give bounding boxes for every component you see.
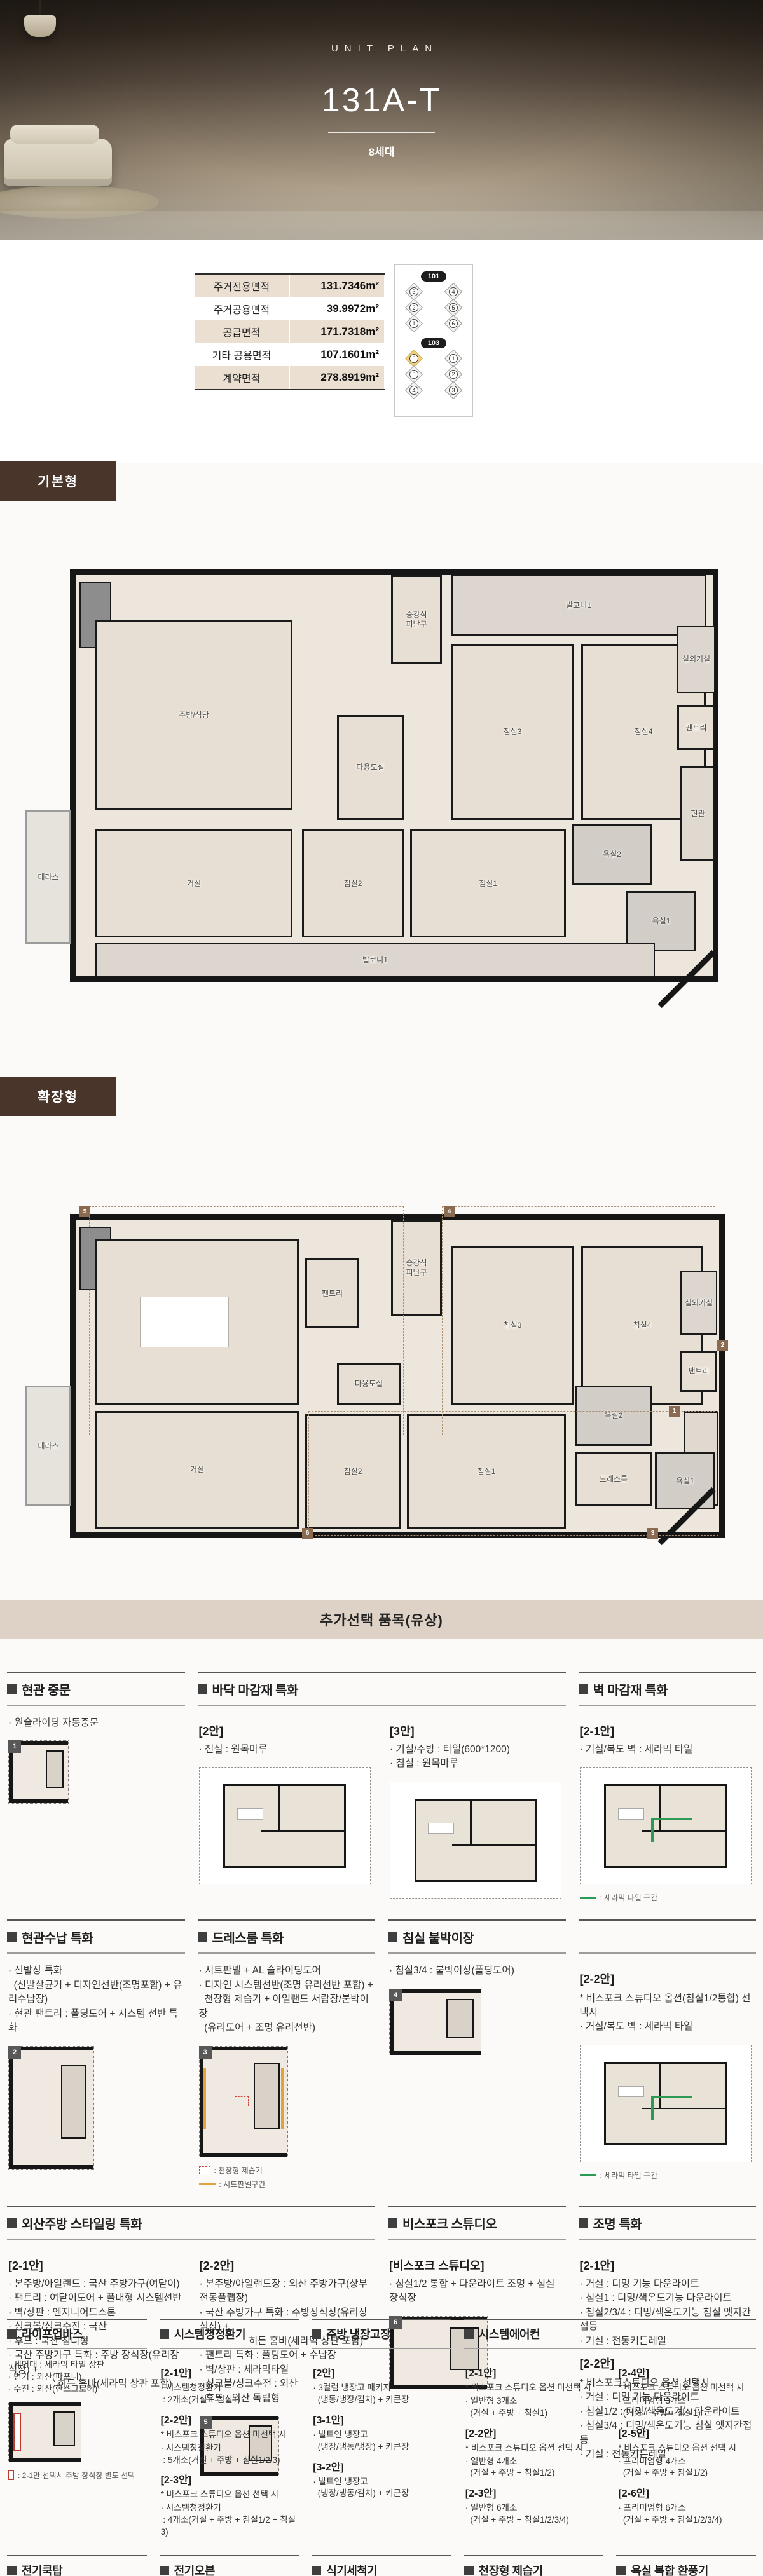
option-header [579, 1919, 757, 1954]
option-bullet: : 2개소(거실 + 침실1) [161, 2394, 298, 2406]
legend-row: : 세라믹 타일 구간 [580, 2170, 755, 2181]
option-variant-tag: [2-1안] [580, 1722, 755, 1739]
unit-position: 4 [404, 383, 423, 397]
option-header-label: 전기오븐 [174, 2562, 215, 2576]
option-cell: 바닥 마감재 특화[2안]· 전실 : 원목마루[3안]· 거실/주방 : 타일… [198, 1672, 566, 1899]
option-bullet: : 4개소(거실 + 주방 + 침실1/2 + 침실3) [161, 2514, 298, 2539]
unit-position: 3 [444, 383, 463, 397]
option-note: * 비스포크 스튜디오 옵션 선택 시 [465, 2443, 602, 2455]
area-table-row: 기타 공용면적107.1601m² [195, 343, 385, 366]
option-header-label: 벽 마감재 특화 [593, 1680, 668, 1698]
section-bullet-icon [7, 1684, 17, 1694]
option-cell: 전기오븐[2-1안]· 엘지전자/MZ941CLCAT[2-2안]· 밀레/H7… [160, 2555, 299, 2576]
room-label: 현관 [691, 809, 705, 819]
section-bullet-icon [464, 2566, 474, 2575]
unit-position: 2 [444, 367, 463, 381]
option-bullet: · 침실1 : 디밍/색온도기능 다운라이트 [580, 2291, 755, 2305]
option-marker: 6 [302, 1528, 313, 1539]
unit-position-grid: 342516 [399, 285, 469, 331]
option-bullet: · 팬트리 : 여닫이도어 + 폴대형 시스템선반 [8, 2291, 183, 2305]
area-value: 171.7318m² [290, 320, 384, 343]
thumbnail-marker: 5 [200, 2416, 212, 2429]
unit-number: 5 [449, 303, 458, 312]
option-note: * 비스포크 스튜디오 옵션 미선택 시 [465, 2382, 602, 2394]
dehumidifier-zone [235, 2096, 249, 2106]
thumbnail-legends: : 세라믹 타일 구간 [580, 2170, 755, 2181]
option-header: 전기오븐 [160, 2555, 299, 2576]
room-욕실2: 욕실2 [572, 824, 652, 885]
mini-floor-plan [223, 1784, 346, 1868]
room-거실: 거실 [95, 829, 292, 937]
option-bullet: (신발살균기 + 디자인선반(조명포함) + 유리수납장) [8, 1979, 184, 2007]
option-bullet: · 시스템청정환기 [161, 2382, 298, 2394]
hero-banner: UNIT PLAN 131A-T 8세대 [0, 0, 763, 240]
option-bullet: · 빌트인 냉장고 [313, 2429, 450, 2441]
option-bullet: · 3컬럼 냉장고 패키지 [313, 2382, 450, 2394]
room-label: 발코니1 [566, 601, 591, 610]
expansion-dashed-outline [89, 1206, 404, 1435]
thumbnail-marker: 4 [389, 1989, 402, 2001]
options-section-title: 추가선택 품목(유상) [0, 1600, 763, 1639]
option-thumbnail: 1 [8, 1740, 69, 1804]
section-bullet-icon [7, 2566, 17, 2575]
option-body: [2안]· 3컬럼 냉장고 패키지 (냉동/냉장/김치) + 키큰장[3-1안]… [312, 2349, 451, 2500]
option-variant-tag: [2-3안] [161, 2471, 298, 2486]
legend-text: : 세라믹 타일 구간 [600, 2170, 658, 2181]
room-label: 테라스 [38, 873, 58, 882]
orange-legend-icon [199, 2183, 216, 2185]
option-note: * 비스포크 스튜디오 옵션(침실1/2통합) 선택시 [580, 1991, 755, 2019]
option-header-label: 시스템청정환기 [174, 2326, 245, 2342]
option-header-label: 비스포크 스튜디오 [402, 2214, 497, 2232]
room-label: 침실1 [479, 879, 497, 889]
legend-row: : 천장형 제습기 [199, 2165, 375, 2176]
unit-number: 3 [409, 287, 418, 296]
thumbnail-marker: 6 [389, 2316, 402, 2329]
option-bullet: (냉동/냉장/김치) + 키큰장 [313, 2394, 450, 2406]
option-bullet: (냉장/냉동/김치) + 키큰장 [313, 2488, 450, 2500]
unit-number: 1 [449, 354, 458, 363]
option-header: 욕실 복합 환풍기 [616, 2555, 756, 2576]
option-note: * 비스포크 스튜디오 옵션 선택 시 [161, 2489, 298, 2501]
option-header: 비스포크 스튜디오 [388, 2206, 566, 2240]
option-column: [2-1안]* 비스포크 스튜디오 옵션 미선택 시· 일반형 3개소 (거실 … [465, 2359, 602, 2526]
option-columns: [2안]· 3컬럼 냉장고 패키지 (냉동/냉장/김치) + 키큰장[3-1안]… [313, 2359, 450, 2500]
room-테라스: 테라스 [25, 810, 71, 944]
site-map: 101342516103615243 [394, 264, 473, 417]
room-팬트리: 팬트리 [677, 705, 715, 750]
option-row: 현관수납 특화· 신발장 특화 (신발살균기 + 디자인선반(조명포함) + 유… [7, 1919, 756, 2189]
option-bullet: · 신발장 특화 [8, 1964, 184, 1978]
divider-line [328, 67, 435, 67]
room-label: 승강식 피난구 [406, 610, 427, 629]
site-map-block: 101342516 [399, 270, 469, 331]
option-variant-tag: [2-4안] [618, 2364, 755, 2380]
option-variant-tag: [비스포크 스튜디오] [389, 2257, 565, 2273]
option-header: 벽 마감재 특화 [579, 1672, 757, 1706]
unit-position: 2 [404, 301, 423, 315]
option-body: · 세면대 : 세라믹 타일 상판· 변기 : 외산(파포니)· 수전 : 외산… [7, 2349, 147, 2395]
section-bullet-icon [312, 2329, 321, 2339]
option-columns: · 시트판넬 + AL 슬라이딩도어· 디자인 시스템선반(조명 유리선반 포함… [199, 1964, 375, 2189]
room-테라스: 테라스 [25, 1386, 71, 1506]
unit-plan-page: UNIT PLAN 131A-T 8세대 주거전용면적131.7346m²주거공… [0, 0, 763, 2576]
option-marker: 4 [444, 1206, 455, 1217]
room-label: 거실 [190, 1465, 204, 1475]
area-label: 계약면적 [195, 366, 290, 389]
thumbnail-marker: 2 [8, 2046, 21, 2059]
option-variant-tag: [3-1안] [313, 2411, 450, 2427]
option-column: [3안]· 거실/주방 : 타일(600*1200)· 침실 : 원목마루 [390, 1716, 565, 1899]
section-bullet-icon [312, 2566, 321, 2575]
option-columns: · 신발장 특화 (신발살균기 + 디자인선반(조명포함) + 유리수납장)· … [8, 1964, 184, 2169]
option-thumbnail [390, 1782, 561, 1899]
option-bullet: · 시스템청정환기 [161, 2502, 298, 2514]
appliance-options-grid: 라이프업바스· 세면대 : 세라믹 타일 상판· 변기 : 외산(파포니)· 수… [0, 2319, 763, 2576]
option-note: * 비스포크 스튜디오 옵션 미선택 시 [161, 2429, 298, 2441]
option-bullet: · 빌트인 냉장고 [313, 2476, 450, 2488]
option-header: 시스템청정환기 [160, 2319, 299, 2349]
unit-number: 6 [449, 319, 458, 328]
option-columns: · 원슬라이딩 자동중문1 [8, 1716, 184, 1804]
section-bullet-icon [579, 2218, 588, 2228]
option-column: [2-1안]· 시스템청정환기 : 2개소(거실 + 침실1)[2-2안]* 비… [161, 2359, 298, 2539]
option-cell: 주방 냉장고장[2안]· 3컬럼 냉장고 패키지 (냉동/냉장/김치) + 키큰… [312, 2319, 451, 2500]
unit-number: 4 [449, 287, 458, 296]
option-body: [2-1안]· 시스템청정환기 : 2개소(거실 + 침실1)[2-2안]* 비… [160, 2349, 299, 2539]
option-bullet: · 거실/주방 : 타일(600*1200) [390, 1743, 565, 1757]
section-bullet-icon [388, 2218, 397, 2228]
room-label: 테라스 [38, 1441, 58, 1451]
legend-row: : 시트판넬구간 [199, 2179, 375, 2190]
option-bullet: · 세면대 : 세라믹 타일 상판 [8, 2359, 146, 2371]
option-bullet: (거실 + 주방 + 침실1/2/3/4) [618, 2514, 755, 2526]
option-header: 침실 붙박이장 [388, 1919, 566, 1954]
option-note: * 비스포크 스튜디오 옵션 미선택 시 [618, 2382, 755, 2394]
thumbnail-marker: 1 [8, 1740, 21, 1753]
option-header-label: 드레스룸 특화 [212, 1928, 284, 1946]
red-dash-legend-icon [199, 2166, 210, 2174]
area-value: 278.8919m² [290, 366, 384, 389]
option-cell: 시스템에어컨[2-1안]* 비스포크 스튜디오 옵션 미선택 시· 일반형 3개… [464, 2319, 756, 2526]
option-row: 전기쿡탑[2-1안]· 3구 인덕션 : 삼성전자/NZ63B5056AK[2-… [7, 2555, 756, 2576]
option-bullet: · 일반형 6개소 [465, 2502, 602, 2514]
room-label: 욕실2 [603, 850, 621, 859]
option-column: · 신발장 특화 (신발살균기 + 디자인선반(조명포함) + 유리수납장)· … [8, 1964, 184, 2169]
green-legend-icon [580, 1897, 596, 1899]
ceramic-tile-zone [651, 2096, 692, 2098]
option-header-label: 라이프업바스 [22, 2326, 83, 2342]
unit-position: 3 [404, 285, 423, 299]
option-columns: [2안]· 전실 : 원목마루[3안]· 거실/주방 : 타일(600*1200… [199, 1716, 565, 1899]
option-columns: · 세면대 : 세라믹 타일 상판· 변기 : 외산(파포니)· 수전 : 외산… [8, 2359, 146, 2395]
option-bullet: (거실 + 주방 + 침실1/2/3/4) [465, 2514, 602, 2526]
area-table-row: 공급면적171.7318m² [195, 320, 385, 343]
room-주방-식당: 주방/식당 [95, 620, 292, 810]
section-bullet-icon [198, 1684, 207, 1694]
option-column: [2-2안]* 비스포크 스튜디오 옵션(침실1/2통합) 선택시· 거실/복도… [580, 1964, 755, 2180]
option-columns: [2-1안]· 시스템청정환기 : 2개소(거실 + 침실1)[2-2안]* 비… [161, 2359, 298, 2539]
unit-number: 6 [409, 354, 418, 363]
option-column: · 시트판넬 + AL 슬라이딩도어· 디자인 시스템선반(조명 유리선반 포함… [199, 1964, 375, 2189]
thumbnail-legends: : 세라믹 타일 구간 [580, 1892, 755, 1903]
option-bullet: · 전실 : 원목마루 [199, 1743, 374, 1757]
option-columns: · 침실3/4 : 붙박이장(폴딩도어)4 [389, 1964, 565, 2055]
option-column: [2안]· 전실 : 원목마루 [199, 1716, 374, 1899]
option-bullet: · 수전 : 외산(한스그로헤) [8, 2383, 146, 2395]
room-침실3: 침실3 [451, 644, 574, 820]
option-columns: [2-2안]* 비스포크 스튜디오 옵션(침실1/2통합) 선택시· 거실/복도… [580, 1964, 755, 2180]
option-bullet: · 본주방/아일랜드 : 국산 주방가구(여닫이) [8, 2277, 183, 2291]
room-label: 실외기실 [682, 655, 710, 664]
option-variant-tag: [2-2안] [161, 2411, 298, 2427]
building-number-badge: 103 [421, 338, 446, 348]
rug-image [0, 186, 159, 219]
option-cell: 드레스룸 특화· 시트판넬 + AL 슬라이딩도어· 디자인 시스템선반(조명 … [198, 1919, 376, 2189]
area-table-row: 계약면적278.8919m² [195, 366, 385, 389]
option-cell: 현관수납 특화· 신발장 특화 (신발살균기 + 디자인선반(조명포함) + 유… [7, 1919, 185, 2169]
option-header-label: 침실 붙박이장 [402, 1928, 474, 1946]
area-label: 기타 공용면적 [195, 343, 290, 366]
option-cell: 시스템청정환기[2-1안]· 시스템청정환기 : 2개소(거실 + 침실1)[2… [160, 2319, 299, 2539]
option-cell: 현관 중문· 원슬라이딩 자동중문1 [7, 1672, 185, 1804]
option-header-label: 현관 중문 [22, 1680, 71, 1698]
option-variant-tag: [2-1안] [161, 2364, 298, 2380]
site-map-block: 103615243 [399, 337, 469, 397]
mini-floor-plan [415, 1799, 537, 1883]
area-value: 131.7346m² [290, 275, 384, 297]
option-body: [2-1안]* 비스포크 스튜디오 옵션 미선택 시· 일반형 3개소 (거실 … [464, 2349, 756, 2526]
option-row: 라이프업바스· 세면대 : 세라믹 타일 상판· 변기 : 외산(파포니)· 수… [7, 2319, 756, 2539]
option-column: · 세면대 : 세라믹 타일 상판· 변기 : 외산(파포니)· 수전 : 외산… [8, 2359, 146, 2395]
section-bullet-icon [7, 2329, 17, 2339]
option-note: * 비스포크 스튜디오 옵션 선택 시 [618, 2443, 755, 2455]
option-header: 천장형 제습기 [464, 2555, 604, 2576]
option-header-label: 외산주방 스타일링 특화 [22, 2214, 142, 2232]
option-column: [2-1안]· 거실/복도 벽 : 세라믹 타일: 세라믹 타일 구간 [580, 1716, 755, 1903]
option-bullet: (유리도어 + 조명 유리선반) [199, 2021, 375, 2035]
area-info-section: 주거전용면적131.7346m²주거공용면적39.9972m²공급면적171.7… [0, 240, 763, 463]
option-variant-tag: [2-5안] [618, 2425, 755, 2440]
option-header-label: 조명 특화 [593, 2214, 642, 2232]
option-header: 현관수납 특화 [7, 1919, 185, 1954]
option-columns: [2-1안]* 비스포크 스튜디오 옵션 미선택 시· 일반형 3개소 (거실 … [465, 2359, 755, 2526]
option-thumbnail: 2 [8, 2046, 94, 2170]
room-현관: 현관 [680, 766, 715, 861]
area-table-row: 주거전용면적131.7346m² [195, 275, 385, 297]
room-실외기실: 실외기실 [677, 626, 715, 693]
option-header: 드레스룸 특화 [198, 1919, 376, 1954]
option-bullet: · 거실/복도 벽 : 세라믹 타일 [580, 2020, 755, 2034]
unit-position-grid: 615243 [399, 351, 469, 397]
option-bullet: · 프리미엄형 4개소 [618, 2456, 755, 2468]
option-bullet: (냉장/냉동/냉장) + 키큰장 [313, 2441, 450, 2453]
thumbnail-marker: 3 [199, 2046, 212, 2059]
option-bullet: · 프리미엄형 6개소 [618, 2502, 755, 2514]
thumbnail-legends: : 천장형 제습기: 시트판넬구간 [199, 2165, 375, 2190]
option-bullet: (거실 + 주방 + 침실1) [618, 2408, 755, 2420]
option-marker: 1 [669, 1406, 680, 1417]
divider-line [328, 132, 435, 133]
unit-number: 2 [449, 370, 458, 379]
section-bullet-icon [388, 1932, 397, 1942]
option-bullet: · 침실 : 원목마루 [390, 1757, 565, 1771]
option-column: [2안]· 3컬럼 냉장고 패키지 (냉동/냉장/김치) + 키큰장[3-1안]… [313, 2359, 450, 2500]
badge-extended-type: 확장형 [0, 1077, 116, 1116]
option-body: · 침실3/4 : 붙박이장(폴딩도어)4 [388, 1954, 566, 2055]
option-header: 식기세척기 [312, 2555, 451, 2576]
area-table: 주거전용면적131.7346m²주거공용면적39.9972m²공급면적171.7… [195, 273, 385, 390]
option-thumbnail [199, 1767, 371, 1884]
unit-position: 4 [444, 285, 463, 299]
option-cell: [2-2안]* 비스포크 스튜디오 옵션(침실1/2통합) 선택시· 거실/복도… [579, 1919, 757, 2180]
room-label: 침실2 [344, 879, 362, 889]
legend-text: : 시트판넬구간 [219, 2179, 266, 2190]
option-column: [2-4안]* 비스포크 스튜디오 옵션 미선택 시· 프리미엄형 3개소 (거… [618, 2359, 755, 2526]
room-label: 승강식 피난구 [406, 1258, 427, 1278]
option-bullet: · 일반형 3개소 [465, 2395, 602, 2408]
option-bullet: (거실 + 주방 + 침실1/2) [618, 2467, 755, 2479]
option-body: · 신발장 특화 (신발살균기 + 디자인선반(조명포함) + 유리수납장)· … [7, 1954, 185, 2169]
option-header-label: 바닥 마감재 특화 [212, 1680, 298, 1698]
room-label: 다용도실 [356, 763, 384, 772]
room-발코니1: 발코니1 [451, 575, 706, 636]
option-cell: 천장형 제습기· 가야/KY-1005P* 드레스룸 특화 옵션 선택 시 선택… [464, 2555, 604, 2576]
option-columns: [2-1안]· 거실/복도 벽 : 세라믹 타일: 세라믹 타일 구간 [580, 1716, 755, 1903]
room-label: 주방/식당 [179, 711, 209, 720]
area-value: 39.9972m² [290, 297, 384, 320]
floor-plan-basic: 테라스주방/식당승강식 피난구발코니1침실3침실4실외기실팬트리다용도실현관거실… [19, 537, 750, 1020]
room-침실2: 침실2 [302, 829, 404, 937]
option-bullet: · 거실 : 디밍 기능 다운라이트 [580, 2277, 755, 2291]
option-bullet: · 일반형 4개소 [465, 2456, 602, 2468]
option-header: 현관 중문 [7, 1672, 185, 1706]
section-bullet-icon [7, 1932, 17, 1942]
option-thumbnail: 4 [389, 1989, 481, 2055]
legend-text: : 천장형 제습기 [214, 2165, 263, 2176]
ceramic-tile-zone [651, 2096, 654, 2120]
option-body: · 시트판넬 + AL 슬라이딩도어· 디자인 시스템선반(조명 유리선반 포함… [198, 1954, 376, 2189]
expansion-dashed-outline [308, 1411, 718, 1536]
area-label: 주거공용면적 [195, 297, 290, 320]
option-cell: 전기쿡탑[2-1안]· 3구 인덕션 : 삼성전자/NZ63B5056AK[2-… [7, 2555, 147, 2576]
option-bullet: · 현관 팬트리 : 폴딩도어 + 시스템 선반 특화 [8, 2007, 184, 2036]
option-bullet: (거실 + 주방 + 침실1/2) [465, 2467, 602, 2479]
option-bullet: · 프리미엄형 3개소 [618, 2395, 755, 2408]
option-thumbnail [580, 1767, 752, 1884]
area-label: 주거전용면적 [195, 275, 290, 297]
option-variant-tag: [2-2안] [200, 2257, 375, 2273]
option-variant-tag: [2-1안] [580, 2257, 755, 2273]
page-title: 131A-T [0, 81, 763, 119]
option-header-label: 현관수납 특화 [22, 1928, 93, 1946]
option-body: [2안]· 전실 : 원목마루[3안]· 거실/주방 : 타일(600*1200… [198, 1706, 566, 1899]
room-label: 발코니1 [362, 955, 388, 965]
room-발코니1: 발코니1 [95, 943, 655, 977]
green-legend-icon [580, 2174, 596, 2176]
section-bullet-icon [616, 2566, 626, 2575]
option-column: · 원슬라이딩 자동중문1 [8, 1716, 184, 1804]
option-variant-tag: [2안] [313, 2364, 450, 2380]
mini-floor-plan [604, 2062, 727, 2146]
option-header-label: 시스템에어컨 [479, 2326, 540, 2342]
option-variant-tag: [3-2안] [313, 2458, 450, 2474]
option-variant-tag: [2-2안] [465, 2425, 602, 2440]
option-body: [2-2안]* 비스포크 스튜디오 옵션(침실1/2통합) 선택시· 거실/복도… [579, 1954, 757, 2180]
option-row: 현관 중문· 원슬라이딩 자동중문1바닥 마감재 특화[2안]· 전실 : 원목… [7, 1672, 756, 1903]
mini-floor-plan [604, 1784, 727, 1868]
unit-position: 1 [404, 317, 423, 331]
badge-basic-type: 기본형 [0, 461, 116, 501]
option-variant-tag: [2-1안] [465, 2364, 602, 2380]
option-body: · 원슬라이딩 자동중문1 [7, 1706, 185, 1804]
section-bullet-icon [160, 2566, 169, 2575]
option-variant-tag: [2안] [199, 1722, 374, 1739]
room-label: 침실4 [635, 727, 653, 737]
option-bullet: · 벽/상판 : 엔지니어드스톤 [8, 2306, 183, 2320]
room-침실1: 침실1 [410, 829, 566, 937]
room-label: 욕실1 [652, 917, 671, 926]
option-header-label: 천장형 제습기 [479, 2562, 543, 2576]
option-header-label: 주방 냉장고장 [326, 2326, 390, 2342]
unit-number: 1 [409, 319, 418, 328]
option-variant-tag: [2-3안] [465, 2484, 602, 2500]
room-label: 팬트리 [685, 723, 706, 733]
room-다용도실: 다용도실 [337, 715, 404, 820]
section-bullet-icon [7, 2218, 17, 2228]
legend-text: : 세라믹 타일 구간 [600, 1892, 658, 1903]
section-bullet-icon [464, 2329, 474, 2339]
option-marker: 2 [717, 1340, 728, 1351]
section-bullet-icon [198, 1932, 207, 1942]
option-header: 시스템에어컨 [464, 2319, 756, 2349]
unit-number: 2 [409, 303, 418, 312]
option-header: 주방 냉장고장 [312, 2319, 451, 2349]
unit-position: 1 [444, 351, 463, 365]
option-bullet: · 거실/복도 벽 : 세라믹 타일 [580, 1743, 755, 1757]
option-bullet: · 시스템청정환기 [161, 2443, 298, 2455]
legend-row: : 세라믹 타일 구간 [580, 1892, 755, 1903]
unit-position: 6 [444, 317, 463, 331]
option-cell: 식기세척기[2-1안]· 엘지전자/DIE6PT[2-2안]· 밀레/G7964… [312, 2555, 451, 2576]
section-bullet-icon [579, 1684, 588, 1694]
option-marker: 5 [79, 1206, 90, 1217]
area-value: 107.1601m² [290, 343, 384, 366]
unit-number: 4 [409, 386, 418, 395]
option-variant-tag: [2-1안] [8, 2257, 183, 2273]
option-variant-tag: [2-2안] [580, 1970, 755, 1987]
option-thumbnail: 3 [199, 2046, 288, 2157]
unit-position-highlighted: 6 [404, 351, 423, 365]
option-bullet: · 변기 : 외산(파포니) [8, 2371, 146, 2383]
option-bullet: · 침실3/4 : 붙박이장(폴딩도어) [389, 1964, 565, 1978]
option-marker: 3 [647, 1528, 658, 1539]
option-bullet: · 침실1/2 통합 + 다운라이트 조명 + 침실 장식장 [389, 2277, 565, 2306]
option-bullet: · 본주방/아일랜드장 : 외산 주방가구(상부 전동플랩장) [200, 2277, 375, 2306]
option-cell: 침실 붙박이장· 침실3/4 : 붙박이장(폴딩도어)4 [388, 1919, 566, 2055]
building-number-badge: 101 [421, 271, 446, 282]
option-variant-tag: [2-6안] [618, 2484, 755, 2500]
option-bullet: · 시트판넬 + AL 슬라이딩도어 [199, 1964, 375, 1978]
option-cell: 라이프업바스· 세면대 : 세라믹 타일 상판· 변기 : 외산(파포니)· 수… [7, 2319, 147, 2395]
ceramic-tile-zone [651, 1818, 692, 1820]
option-bullet: : 5개소(거실 + 주방 + 침실1/2/3) [161, 2455, 298, 2467]
section-bullet-icon [160, 2329, 169, 2339]
option-column: · 침실3/4 : 붙박이장(폴딩도어)4 [389, 1964, 565, 2055]
unit-position: 5 [404, 367, 423, 381]
option-cell: 벽 마감재 특화[2-1안]· 거실/복도 벽 : 세라믹 타일: 세라믹 타일… [579, 1672, 757, 1903]
option-bullet: 천장형 제습기 + 아일랜드 서랍장/붙박이장 [199, 1993, 375, 2021]
